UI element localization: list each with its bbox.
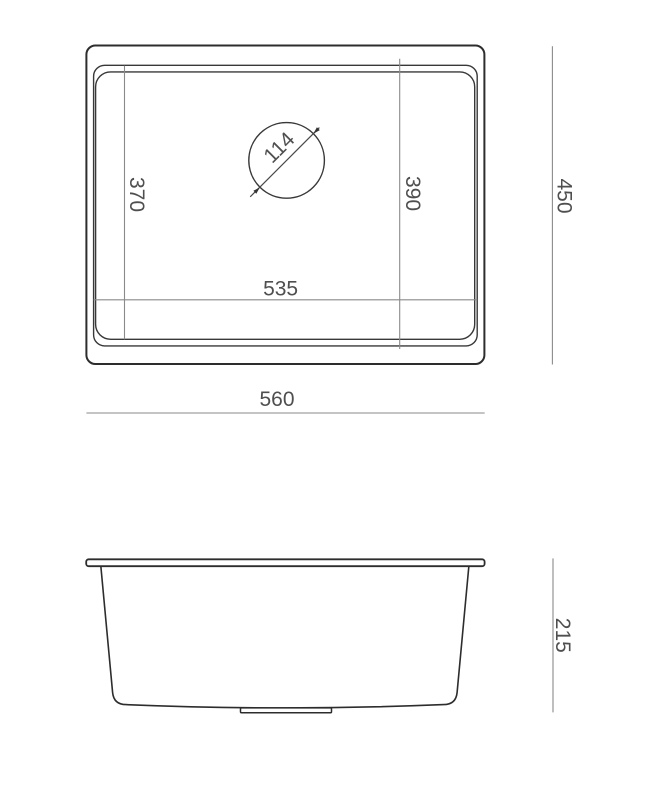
svg-text:535: 535 (263, 278, 298, 301)
svg-text:370: 370 (125, 177, 148, 212)
svg-text:390: 390 (401, 176, 424, 211)
svg-text:215: 215 (551, 618, 574, 653)
svg-text:450: 450 (553, 178, 576, 213)
svg-text:560: 560 (259, 388, 294, 411)
